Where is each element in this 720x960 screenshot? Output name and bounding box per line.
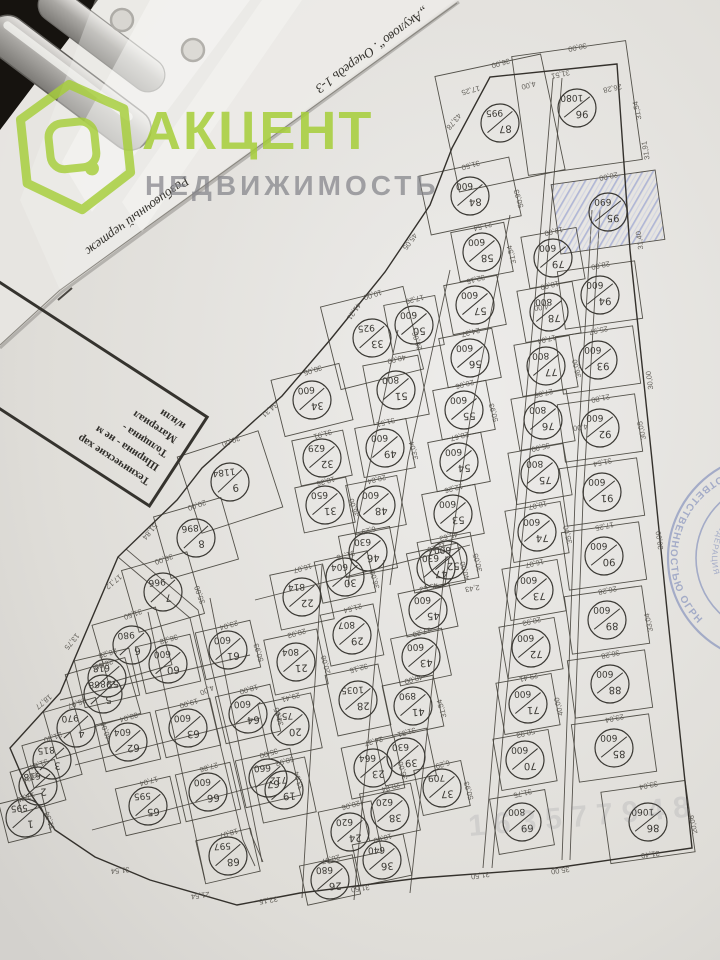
svg-text:600: 600: [455, 180, 473, 191]
agency-logo-wordmark: АКЦЕНТ: [142, 104, 373, 158]
svg-text:980: 980: [117, 629, 135, 640]
svg-text:79: 79: [552, 258, 565, 269]
svg-text:96: 96: [576, 108, 589, 119]
svg-text:74: 74: [536, 532, 549, 543]
svg-text:600: 600: [444, 446, 462, 457]
svg-text:600: 600: [590, 540, 608, 550]
svg-text:48: 48: [375, 505, 388, 517]
svg-text:23: 23: [372, 767, 385, 779]
dimension-label: 31,54: [110, 865, 129, 876]
svg-text:78: 78: [548, 312, 561, 323]
svg-text:61: 61: [227, 649, 240, 661]
svg-text:3: 3: [54, 759, 61, 771]
svg-text:33: 33: [371, 337, 384, 349]
svg-text:90: 90: [603, 556, 616, 567]
svg-text:29: 29: [351, 634, 364, 646]
svg-text:600: 600: [173, 712, 191, 723]
svg-text:600: 600: [413, 594, 431, 605]
svg-text:56: 56: [469, 358, 482, 370]
svg-text:597: 597: [213, 840, 231, 851]
svg-text:800: 800: [529, 404, 547, 415]
svg-text:19: 19: [283, 789, 296, 801]
svg-text:620: 620: [335, 816, 353, 827]
svg-text:600: 600: [539, 242, 557, 253]
svg-text:1080: 1080: [560, 92, 583, 102]
svg-text:600: 600: [449, 394, 467, 405]
binder-hole: [111, 9, 133, 31]
svg-text:600: 600: [593, 604, 611, 614]
svg-text:600: 600: [586, 412, 604, 422]
svg-text:630: 630: [391, 741, 409, 752]
svg-text:709: 709: [427, 772, 445, 783]
svg-text:38: 38: [389, 811, 402, 823]
svg-text:43: 43: [420, 656, 433, 668]
svg-text:630: 630: [353, 536, 371, 547]
svg-text:34: 34: [311, 399, 324, 411]
svg-text:595: 595: [133, 790, 151, 801]
svg-text:62: 62: [127, 741, 140, 753]
svg-text:71: 71: [527, 704, 540, 715]
svg-text:600: 600: [455, 342, 473, 353]
svg-text:600: 600: [523, 516, 541, 527]
svg-text:600: 600: [600, 732, 618, 742]
svg-text:95: 95: [607, 212, 620, 223]
svg-text:600: 600: [520, 574, 538, 585]
svg-text:600: 600: [517, 632, 535, 643]
agency-logo-icon: [9, 72, 143, 229]
svg-text:5: 5: [105, 693, 112, 705]
svg-text:21: 21: [295, 661, 308, 673]
svg-text:89: 89: [606, 620, 619, 631]
svg-text:54: 54: [458, 462, 471, 474]
svg-text:600: 600: [193, 776, 211, 787]
svg-text:7: 7: [165, 591, 172, 603]
svg-text:28: 28: [357, 699, 370, 711]
svg-text:660: 660: [253, 762, 271, 773]
svg-text:60: 60: [167, 663, 180, 675]
svg-text:600: 600: [399, 309, 417, 320]
svg-text:600: 600: [584, 344, 602, 354]
svg-text:36: 36: [381, 859, 394, 871]
binder-hole: [182, 39, 204, 61]
svg-text:966: 966: [148, 576, 166, 587]
svg-text:650: 650: [310, 489, 328, 500]
svg-text:600: 600: [596, 668, 614, 678]
svg-text:75: 75: [539, 474, 552, 485]
svg-text:600: 600: [213, 634, 231, 645]
svg-text:600: 600: [233, 698, 251, 709]
svg-text:77: 77: [545, 366, 558, 377]
svg-text:690: 690: [594, 196, 612, 206]
svg-text:47: 47: [435, 567, 448, 579]
svg-text:896: 896: [181, 522, 199, 533]
svg-text:49: 49: [384, 448, 397, 460]
svg-text:600: 600: [467, 236, 485, 247]
svg-text:890: 890: [398, 690, 416, 701]
svg-text:9: 9: [232, 481, 239, 493]
svg-text:22: 22: [301, 596, 314, 608]
svg-text:57: 57: [474, 305, 487, 317]
svg-text:31: 31: [324, 504, 337, 516]
svg-text:84: 84: [469, 195, 482, 207]
svg-text:600: 600: [406, 641, 424, 652]
svg-text:85: 85: [613, 748, 626, 759]
svg-text:600: 600: [153, 648, 171, 659]
svg-text:629: 629: [307, 442, 325, 453]
svg-text:53: 53: [452, 514, 465, 526]
svg-text:68: 68: [227, 855, 240, 867]
svg-text:37: 37: [441, 787, 454, 799]
svg-text:32: 32: [321, 457, 334, 469]
svg-text:45: 45: [427, 609, 440, 621]
svg-text:600: 600: [588, 476, 606, 486]
svg-text:93: 93: [597, 360, 610, 371]
svg-text:600: 600: [460, 289, 478, 300]
svg-text:64: 64: [247, 713, 260, 725]
svg-text:66: 66: [207, 791, 220, 803]
svg-text:87: 87: [499, 122, 512, 134]
svg-text:712: 712: [270, 774, 288, 785]
svg-text:925: 925: [357, 322, 375, 333]
photo-of-subdivision-plan: 9610809569087995846009460093600926009160…: [0, 0, 720, 960]
svg-text:620: 620: [375, 796, 393, 807]
svg-text:600: 600: [586, 279, 604, 289]
svg-text:8: 8: [198, 537, 205, 549]
svg-text:800: 800: [532, 350, 550, 361]
svg-text:51: 51: [395, 390, 408, 402]
svg-text:46: 46: [367, 552, 380, 564]
svg-text:600: 600: [511, 744, 529, 755]
svg-text:804: 804: [281, 646, 299, 657]
svg-text:24: 24: [349, 831, 362, 843]
svg-text:970: 970: [61, 712, 79, 723]
svg-text:91: 91: [601, 492, 614, 503]
svg-text:600: 600: [297, 384, 315, 395]
svg-text:1035: 1035: [341, 684, 364, 695]
svg-text:76: 76: [542, 420, 555, 431]
svg-text:807: 807: [338, 619, 356, 630]
svg-text:995: 995: [486, 107, 504, 118]
svg-text:41: 41: [412, 705, 425, 717]
svg-text:88: 88: [609, 684, 622, 695]
svg-text:30: 30: [344, 576, 357, 588]
agency-logo-subtitle: НЕДВИЖИМОСТЬ: [145, 172, 439, 200]
svg-text:600: 600: [370, 432, 388, 443]
svg-text:604: 604: [113, 726, 131, 737]
svg-text:4: 4: [78, 727, 85, 739]
svg-text:814: 814: [287, 581, 305, 592]
svg-text:58: 58: [481, 252, 494, 264]
svg-text:39: 39: [405, 756, 418, 768]
svg-text:664: 664: [358, 752, 376, 763]
plot-cell-hatched: [551, 170, 665, 254]
svg-text:600: 600: [361, 489, 379, 500]
svg-text:63: 63: [187, 727, 200, 739]
svg-text:600: 600: [514, 688, 532, 699]
svg-text:70: 70: [524, 760, 537, 771]
svg-text:600: 600: [438, 498, 456, 509]
svg-text:73: 73: [533, 590, 546, 601]
svg-text:55: 55: [463, 410, 476, 422]
svg-text:1: 1: [27, 817, 34, 828]
svg-text:800: 800: [526, 458, 544, 469]
svg-text:72: 72: [530, 648, 543, 659]
svg-text:20: 20: [289, 725, 302, 737]
svg-text:6: 6: [134, 644, 141, 656]
svg-text:94: 94: [599, 295, 612, 306]
svg-text:26: 26: [329, 879, 342, 891]
svg-text:800: 800: [381, 374, 399, 385]
svg-text:2: 2: [40, 785, 47, 797]
svg-text:92: 92: [599, 428, 612, 439]
svg-text:65: 65: [147, 805, 160, 817]
svg-text:59: 59: [106, 677, 119, 689]
